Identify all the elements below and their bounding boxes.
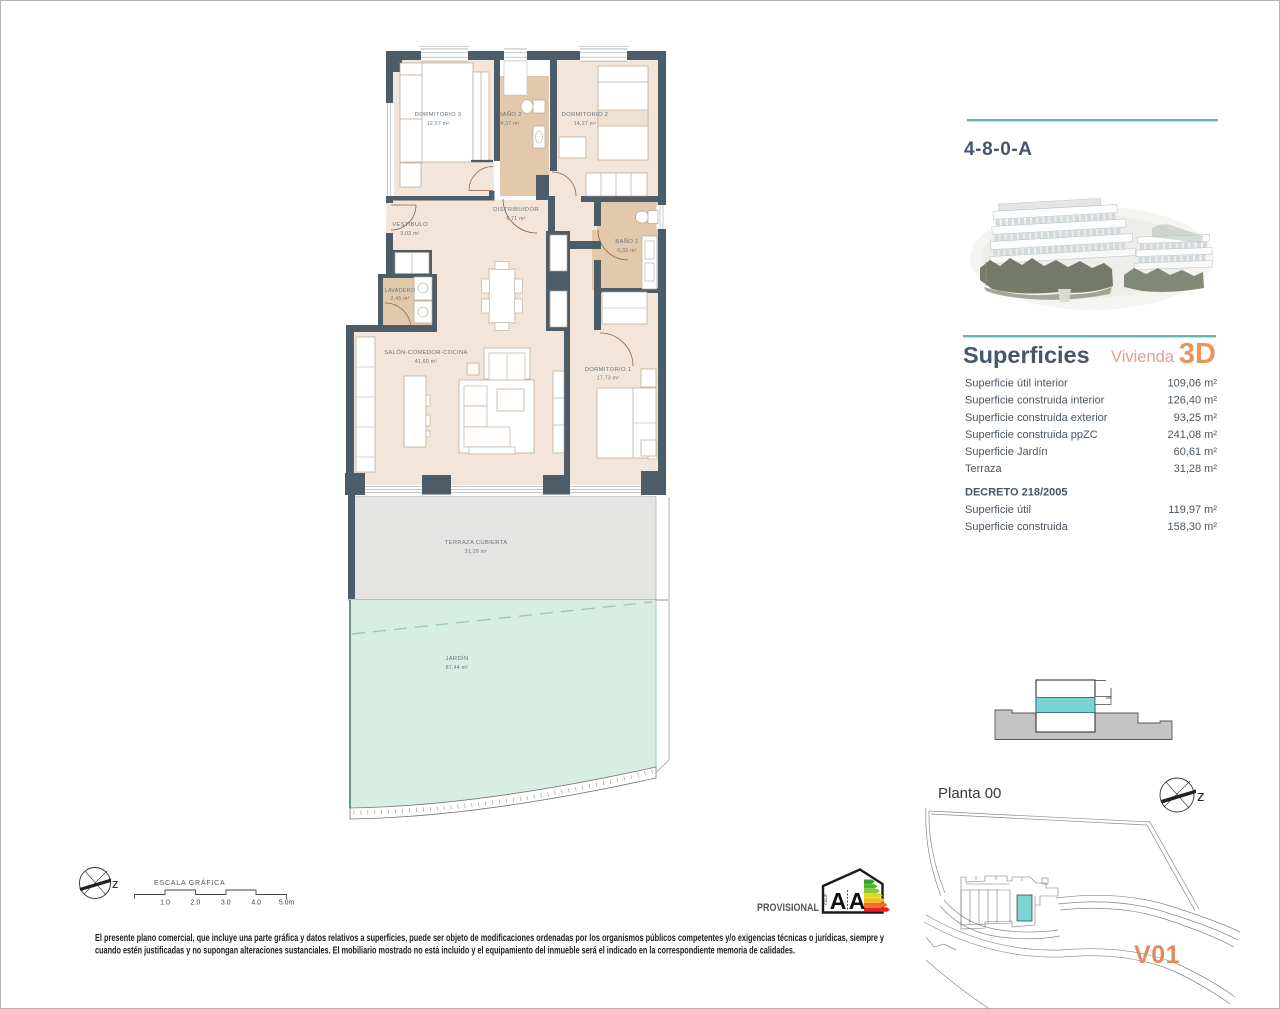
svg-text:ESCALA GRÁFICA: ESCALA GRÁFICA (154, 878, 226, 887)
svg-text:A: A (849, 888, 866, 914)
svg-text:z: z (112, 876, 119, 891)
svg-text:31,28 m²: 31,28 m² (1174, 463, 1218, 475)
svg-text:109,06 m²: 109,06 m² (1167, 378, 1217, 390)
svg-text:31,28 m²: 31,28 m² (465, 549, 488, 555)
svg-text:DISTRIBUIDOR: DISTRIBUIDOR (493, 207, 539, 213)
svg-text:87,44 m²: 87,44 m² (446, 665, 469, 671)
svg-text:Planta 00: Planta 00 (938, 785, 1001, 802)
svg-text:6,71 m²: 6,71 m² (506, 216, 525, 222)
svg-text:2.0: 2.0 (191, 900, 201, 907)
svg-text:DECRETO 218/2005: DECRETO 218/2005 (965, 487, 1068, 499)
svg-text:41,60 m²: 41,60 m² (415, 359, 438, 365)
svg-text:SALÓN-COMEDOR-COCINA: SALÓN-COMEDOR-COCINA (384, 349, 468, 356)
svg-text:TERRAZA CUBIERTA: TERRAZA CUBIERTA (445, 540, 508, 546)
svg-text:DORMITORIO 2: DORMITORIO 2 (562, 112, 609, 118)
svg-text:5.0m: 5.0m (279, 900, 295, 907)
svg-text:JARDÍN: JARDÍN (445, 655, 468, 662)
svg-text:12,57 m²: 12,57 m² (427, 121, 450, 127)
svg-text:Vivienda: Vivienda (1111, 348, 1175, 366)
svg-text:3D: 3D (1179, 338, 1216, 370)
svg-text:PROVISIONAL: PROVISIONAL (757, 902, 819, 914)
svg-text:93,25 m²: 93,25 m² (1174, 412, 1218, 424)
svg-text:LAVADERO: LAVADERO (385, 288, 416, 294)
svg-text:BAÑO 2: BAÑO 2 (498, 111, 521, 118)
svg-text:cuando estén justificadas y no: cuando estén justificadas y no supongan … (95, 946, 795, 957)
svg-text:A: A (830, 888, 847, 914)
svg-text:60,61 m²: 60,61 m² (1174, 446, 1218, 458)
svg-text:DORMITORIO 3: DORMITORIO 3 (415, 112, 462, 118)
svg-text:6,33 m²: 6,33 m² (617, 248, 636, 254)
svg-text:158,30 m²: 158,30 m² (1167, 521, 1217, 533)
svg-text:Terraza: Terraza (965, 463, 1003, 475)
svg-text:2,45 m²: 2,45 m² (390, 296, 409, 302)
svg-text:1.0: 1.0 (160, 900, 170, 907)
svg-text:241,08 m²: 241,08 m² (1167, 429, 1217, 441)
svg-text:17,73 m²: 17,73 m² (597, 376, 620, 382)
svg-text:BAÑO 1: BAÑO 1 (615, 238, 638, 245)
svg-text:z: z (1197, 788, 1205, 805)
svg-text:El presente plano comercial, q: El presente plano comercial, que incluye… (95, 933, 884, 944)
svg-text:Superficie construida: Superficie construida (965, 521, 1069, 533)
svg-text:CALIF: CALIF (823, 893, 828, 905)
svg-text:Superficie construida interior: Superficie construida interior (965, 395, 1105, 407)
svg-text:3.0: 3.0 (221, 900, 231, 907)
svg-text:4.0: 4.0 (251, 900, 261, 907)
svg-text:DORMITORIO 1: DORMITORIO 1 (585, 367, 632, 373)
svg-text:Superficie construida exterior: Superficie construida exterior (965, 412, 1108, 424)
svg-text:Superficie útil interior: Superficie útil interior (965, 378, 1068, 390)
svg-text:4-8-0-A: 4-8-0-A (964, 139, 1033, 160)
svg-text:14,27 m²: 14,27 m² (574, 121, 597, 127)
svg-text:119,97 m²: 119,97 m² (1168, 504, 1217, 516)
svg-text:3,03 m²: 3,03 m² (400, 231, 419, 237)
svg-text:Superficie Jardín: Superficie Jardín (965, 446, 1048, 458)
svg-text:4,37 m²: 4,37 m² (500, 121, 519, 127)
svg-text:Superficies: Superficies (963, 342, 1090, 368)
svg-text:Superficie útil: Superficie útil (965, 504, 1031, 516)
svg-text:Superficie construida ppZC: Superficie construida ppZC (965, 429, 1098, 441)
svg-text:V01: V01 (1134, 941, 1180, 969)
svg-text:126,40 m²: 126,40 m² (1167, 395, 1217, 407)
svg-text:VESTÍBULO: VESTÍBULO (392, 221, 428, 228)
